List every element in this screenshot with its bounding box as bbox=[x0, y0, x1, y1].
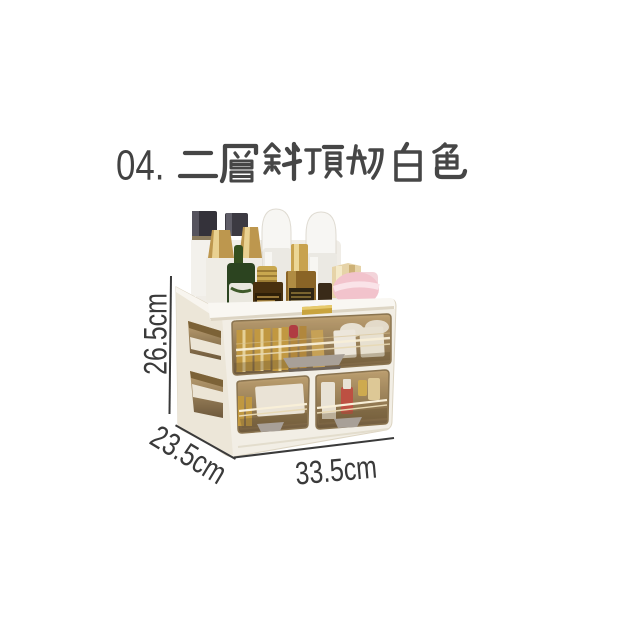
svg-text:33.5cm: 33.5cm bbox=[294, 450, 379, 493]
svg-text:26.5cm: 26.5cm bbox=[139, 293, 175, 375]
svg-text:04.: 04. bbox=[116, 142, 164, 189]
